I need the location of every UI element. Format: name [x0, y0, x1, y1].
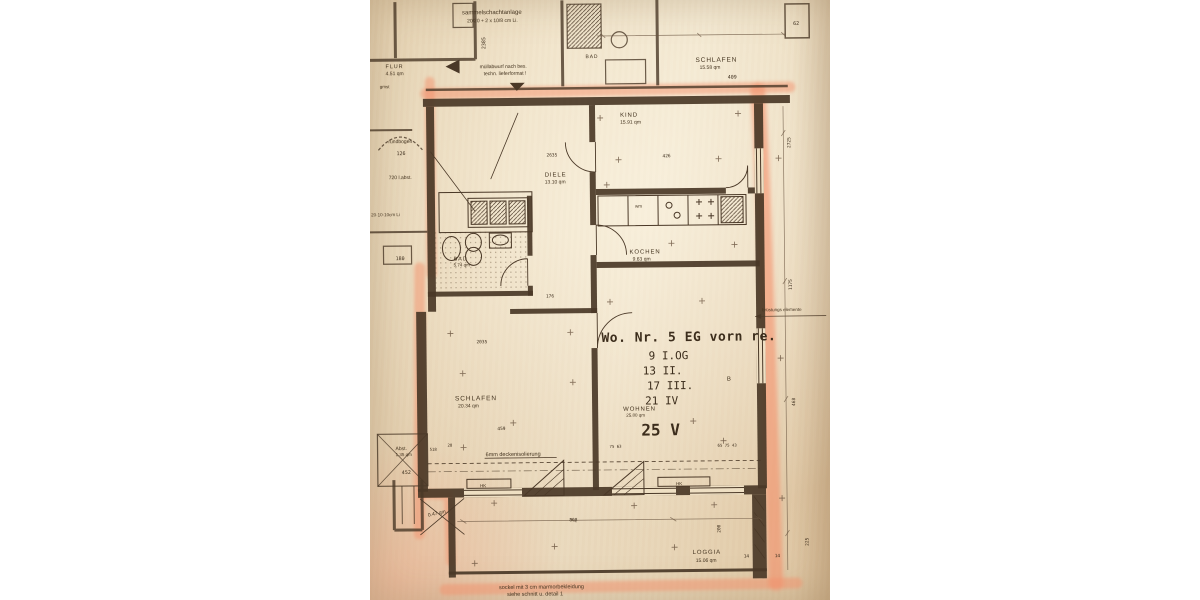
- room-area-kind: 15.91 qm: [620, 120, 641, 126]
- floorplan-photo: FLUR 4.51 qm gmst rundbogen 126 720 l.ab…: [370, 0, 830, 600]
- room-area-abst: 1.35 qm: [396, 452, 413, 457]
- room-area-bad: 5.74 qm: [454, 262, 471, 267]
- dim-200: 200: [716, 524, 722, 532]
- dim-2385: 2385: [481, 37, 487, 49]
- dim-2635: 2635: [546, 152, 557, 158]
- room-label-loggia: LOGGIA: [693, 550, 721, 556]
- dim-28: 28: [447, 443, 452, 448]
- burner-icon: [696, 199, 714, 219]
- dim-126: 126: [396, 151, 405, 157]
- dim-426: 426: [662, 153, 670, 159]
- radiator-icon: [658, 477, 710, 487]
- unit-floor-2: 13 II.: [643, 364, 683, 377]
- note-sockel: sockel mit 3 cm marmorbekleidung: [499, 584, 584, 591]
- screenshot-canvas: FLUR 4.51 qm gmst rundbogen 126 720 l.ab…: [0, 0, 1200, 600]
- note-hk-1: HK: [480, 483, 486, 488]
- note-sammelschacht-2: 20/20 + 2 x 10/8 cm Li.: [467, 18, 518, 25]
- dim-window-2: 65 75 43: [718, 443, 738, 448]
- note-wm: wm: [635, 204, 642, 209]
- room-area-kochen: 9.63 qm: [633, 256, 651, 262]
- room-area-diele: 13.10 qm: [545, 179, 566, 185]
- note-li: 20·10·10cm Li: [371, 212, 400, 217]
- shaft-icon: [471, 201, 487, 224]
- room-label-schlafen: SCHLAFEN: [455, 395, 497, 402]
- highlighter-stroke-bottom: [445, 583, 797, 590]
- room-area-schlafen-top: 15.58 qm: [700, 65, 721, 71]
- dim-62: 62: [793, 21, 799, 27]
- radiator-icon: [467, 479, 511, 488]
- dim-2725: 2725: [786, 137, 792, 148]
- sink-basin-icon: [666, 202, 672, 208]
- room-area-wohnen: 25.80 qm: [626, 413, 645, 418]
- room-area-flur: 4.51 qm: [386, 71, 404, 77]
- unit-floor-3: 17 III.: [647, 379, 693, 392]
- dim-452: 452: [402, 470, 411, 476]
- room-label-kochen: KOCHEN: [629, 249, 660, 255]
- room-area-schlafen: 20.34 qm: [458, 403, 479, 409]
- floorplan-drawing: FLUR 4.51 qm gmst rundbogen 126 720 l.ab…: [370, 0, 830, 600]
- note-bruestung: brüstungs elemente: [762, 307, 802, 312]
- marker-b: B: [727, 377, 731, 383]
- unit-floor-1: 9 I.OG: [649, 349, 689, 362]
- note-gmst: gmst: [380, 84, 391, 89]
- note-muellabwurf-2: techn. lieferformat !: [484, 71, 527, 77]
- note-sockel-2: siehe schnitt u. detail 1: [507, 591, 563, 598]
- shaft-icon: [490, 201, 506, 224]
- room-label-diele: DIELE: [545, 172, 567, 178]
- dim-409: 409: [728, 75, 737, 81]
- note-muellabwurf: müllabwurf nach bes.: [480, 64, 527, 70]
- dim-14a: 14: [744, 553, 750, 559]
- room-label-bad-top: BAD: [585, 54, 598, 60]
- dim-459: 459: [497, 426, 505, 432]
- dim-2035: 2035: [476, 339, 487, 345]
- note-hk-2: HK: [676, 481, 682, 486]
- dim-518: 518: [430, 447, 438, 452]
- unit-count: 25 V: [641, 420, 680, 439]
- dim-808: 808: [569, 517, 577, 523]
- room-label-kind: KIND: [620, 113, 638, 119]
- shaft-icon: [509, 201, 525, 224]
- note-deckenisolierung: 6mm deckenisolierung: [486, 452, 541, 459]
- dim-180: 180: [396, 256, 405, 262]
- dim-225: 225: [804, 537, 810, 545]
- room-label-schlafen-top: SCHLAFEN: [695, 57, 737, 64]
- note-labst: 720 l.abst.: [389, 175, 412, 181]
- room-area-loggia: 15.06 qm: [696, 558, 717, 564]
- dim-window-1: 75 63: [610, 444, 623, 449]
- unit-title: Wo. Nr. 5 EG vorn re.: [601, 329, 776, 346]
- note-sammelschacht: sammelschachtanlage: [462, 10, 522, 17]
- door-swings: [499, 140, 749, 349]
- dim-14b: 14: [775, 553, 781, 559]
- room-label-flur: FLUR: [386, 64, 404, 70]
- dim-468: 468: [791, 398, 797, 406]
- stove-icon: [721, 196, 743, 222]
- dim-1175: 1175: [788, 279, 794, 290]
- dim-176: 176: [546, 293, 554, 299]
- triangle-left-icon: [445, 59, 459, 73]
- note-rundbogen: rundbogen: [388, 139, 412, 145]
- bath-tile-floor: [429, 231, 528, 292]
